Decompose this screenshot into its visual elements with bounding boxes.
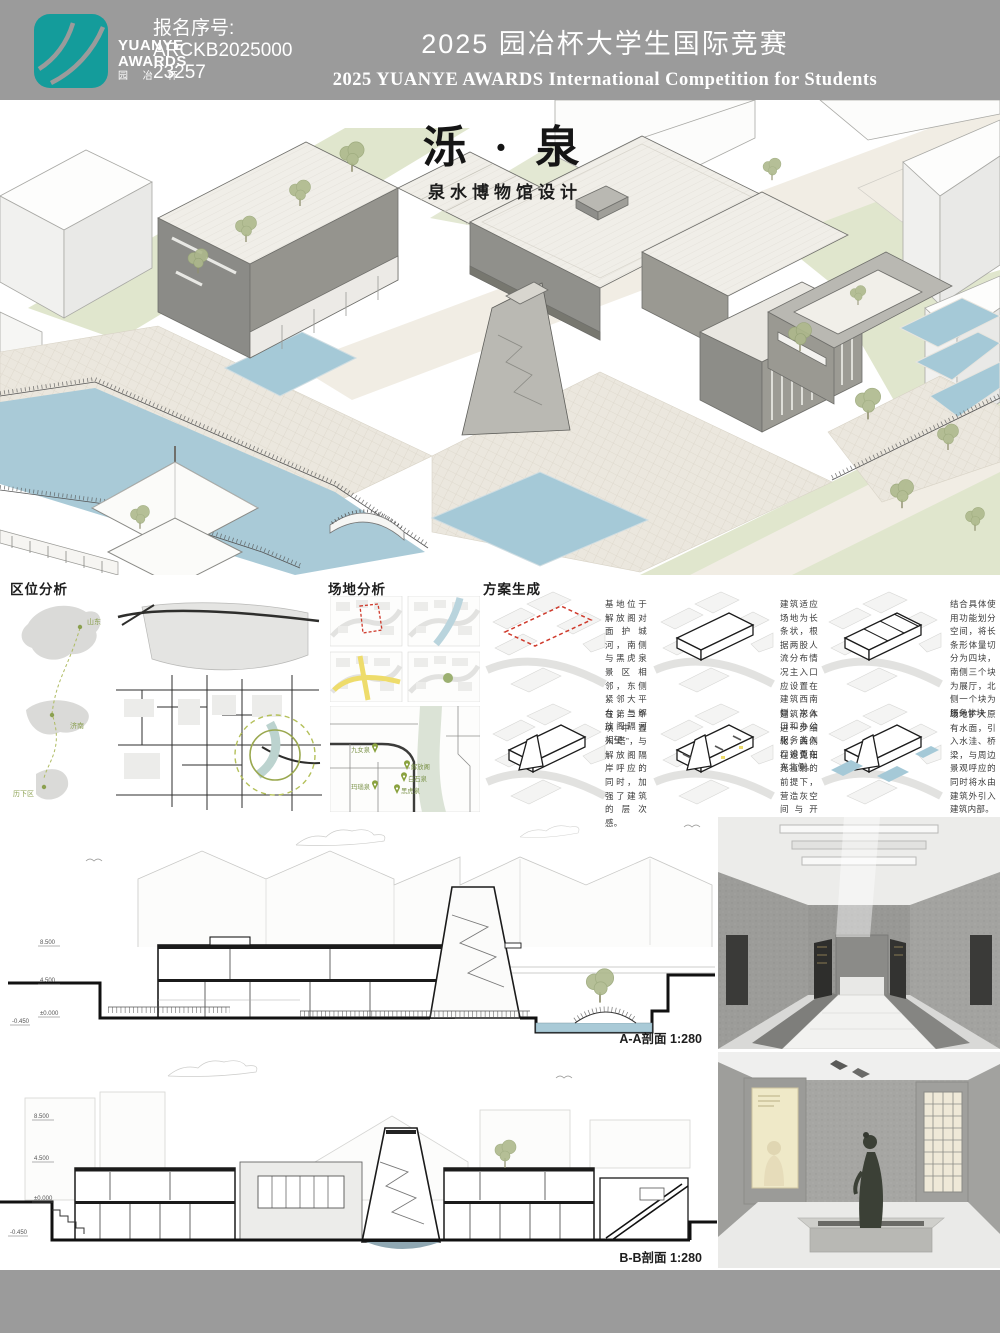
- header-bar: YUANYE AWARDS 园 冶 杯 报名序号: ARCKB2025000 2…: [0, 0, 1000, 100]
- hero-illustration: 泺 · 泉 泉水博物馆设计: [0, 100, 1000, 575]
- scheme-step-2-diagram: [655, 592, 773, 692]
- elevation-label: ±0.000: [40, 1011, 59, 1017]
- scheme-step-5-diagram: [655, 704, 773, 804]
- elevation-label: 4.500: [34, 1156, 50, 1162]
- scheme-diagrams: [483, 590, 1000, 814]
- cloud-sketch: [168, 1061, 257, 1077]
- yuanye-logo-icon: [33, 13, 109, 89]
- competition-titles: 2025 园冶杯大学生国际竞赛 2025 YUANYE AWARDS Inter…: [320, 22, 890, 91]
- section-aa-drawing: 8.500 4.500 ±0.000 -0.450 A-A剖面 1:280: [0, 815, 717, 1050]
- scheme-step-1-diagram: [487, 592, 605, 692]
- competition-title-en: 2025 YUANYE AWARDS International Competi…: [320, 70, 890, 91]
- section-aa-label: A-A剖面 1:280: [619, 1031, 702, 1046]
- project-title: 泺 · 泉: [423, 123, 588, 172]
- project-subtitle: 泉水博物馆设计: [427, 182, 582, 202]
- location-analysis-heading: 区位分析: [10, 578, 68, 598]
- elevation-label: 8.500: [34, 1114, 50, 1120]
- registration-number: 报名序号: ARCKB2025000 23257: [153, 18, 292, 84]
- bird-icon: [86, 825, 700, 861]
- competition-title-cn: 2025 园冶杯大学生国际竞赛: [320, 22, 890, 61]
- site-analysis-heading: 场地分析: [328, 578, 386, 598]
- interior-render-gallery: [718, 817, 1000, 1049]
- tower-basin-water: [366, 1242, 440, 1249]
- scheme-step-3-diagram: [823, 592, 941, 692]
- background-rooflines: [138, 851, 712, 947]
- map-label-shandong: 山东: [87, 617, 101, 626]
- map-label-jinan: 济南: [70, 721, 84, 730]
- reg-label: 报名序号:: [153, 18, 292, 40]
- elevation-label: 4.500: [40, 978, 56, 984]
- spring-pin-label: 白石泉: [408, 774, 428, 783]
- cloud-sketch: [296, 830, 385, 846]
- site-spring-map: 九女泉 解放阁 白石泉 玛瑙泉 黑虎泉: [330, 706, 480, 812]
- interior-render-statue: [718, 1052, 1000, 1268]
- cloud-sketch: [520, 826, 579, 838]
- elevation-label: ±0.000: [34, 1196, 53, 1202]
- reg-number-line2: 23257: [153, 62, 292, 84]
- scheme-step-text-6: 场地扩大原有水面，引入水洼、桥梁，与周边景观呼应的同时将水由建筑外引入建筑内部。: [950, 708, 996, 817]
- scheme-step-6-diagram: [823, 704, 941, 804]
- bird-icon: [556, 1076, 572, 1078]
- footer-bar: [0, 1270, 1000, 1333]
- spring-pin-label: 黑虎泉: [401, 786, 421, 795]
- lattice-screen-panel: [916, 1082, 968, 1204]
- scheme-step-text-3: 结合具体使用功能划分空间，将长条形体量切分为四块，南侧三个块为展厅，北侧一个块为…: [950, 598, 996, 720]
- scroll-painting-panel: [744, 1078, 806, 1204]
- section-bb-drawing: 8.500 4.500 ±0.000 -0.450 B-B剖面 1:280: [0, 1050, 717, 1268]
- site-mini-maps: [330, 596, 480, 702]
- water: [536, 1023, 652, 1032]
- elevation-label: -0.450: [12, 1019, 30, 1025]
- scheme-step-text-4: 在第二个块中置入“塔”，与解放阁隔岸呼应的同时，加强了建筑的层次感。: [605, 708, 647, 830]
- city-street-map: [112, 595, 325, 813]
- section-bb-label: B-B剖面 1:280: [619, 1250, 702, 1265]
- elevation-label: -0.450: [10, 1230, 28, 1236]
- elevation-label: 8.500: [40, 940, 56, 946]
- competition-poster: YUANYE AWARDS 园 冶 杯 报名序号: ARCKB2025000 2…: [0, 0, 1000, 1333]
- spring-pin-label: 九女泉: [351, 745, 371, 754]
- scheme-step-4-diagram: [487, 704, 605, 804]
- spring-pin-label: 解放阁: [411, 762, 430, 771]
- reg-number-line1: ARCKB2025000: [153, 40, 292, 62]
- section-cut-building: [158, 937, 454, 1018]
- spring-pin-label: 玛瑙泉: [351, 782, 371, 791]
- map-label-lixia: 历下区: [13, 790, 34, 798]
- china-location-maps: 山东 济南 历下区: [8, 598, 108, 810]
